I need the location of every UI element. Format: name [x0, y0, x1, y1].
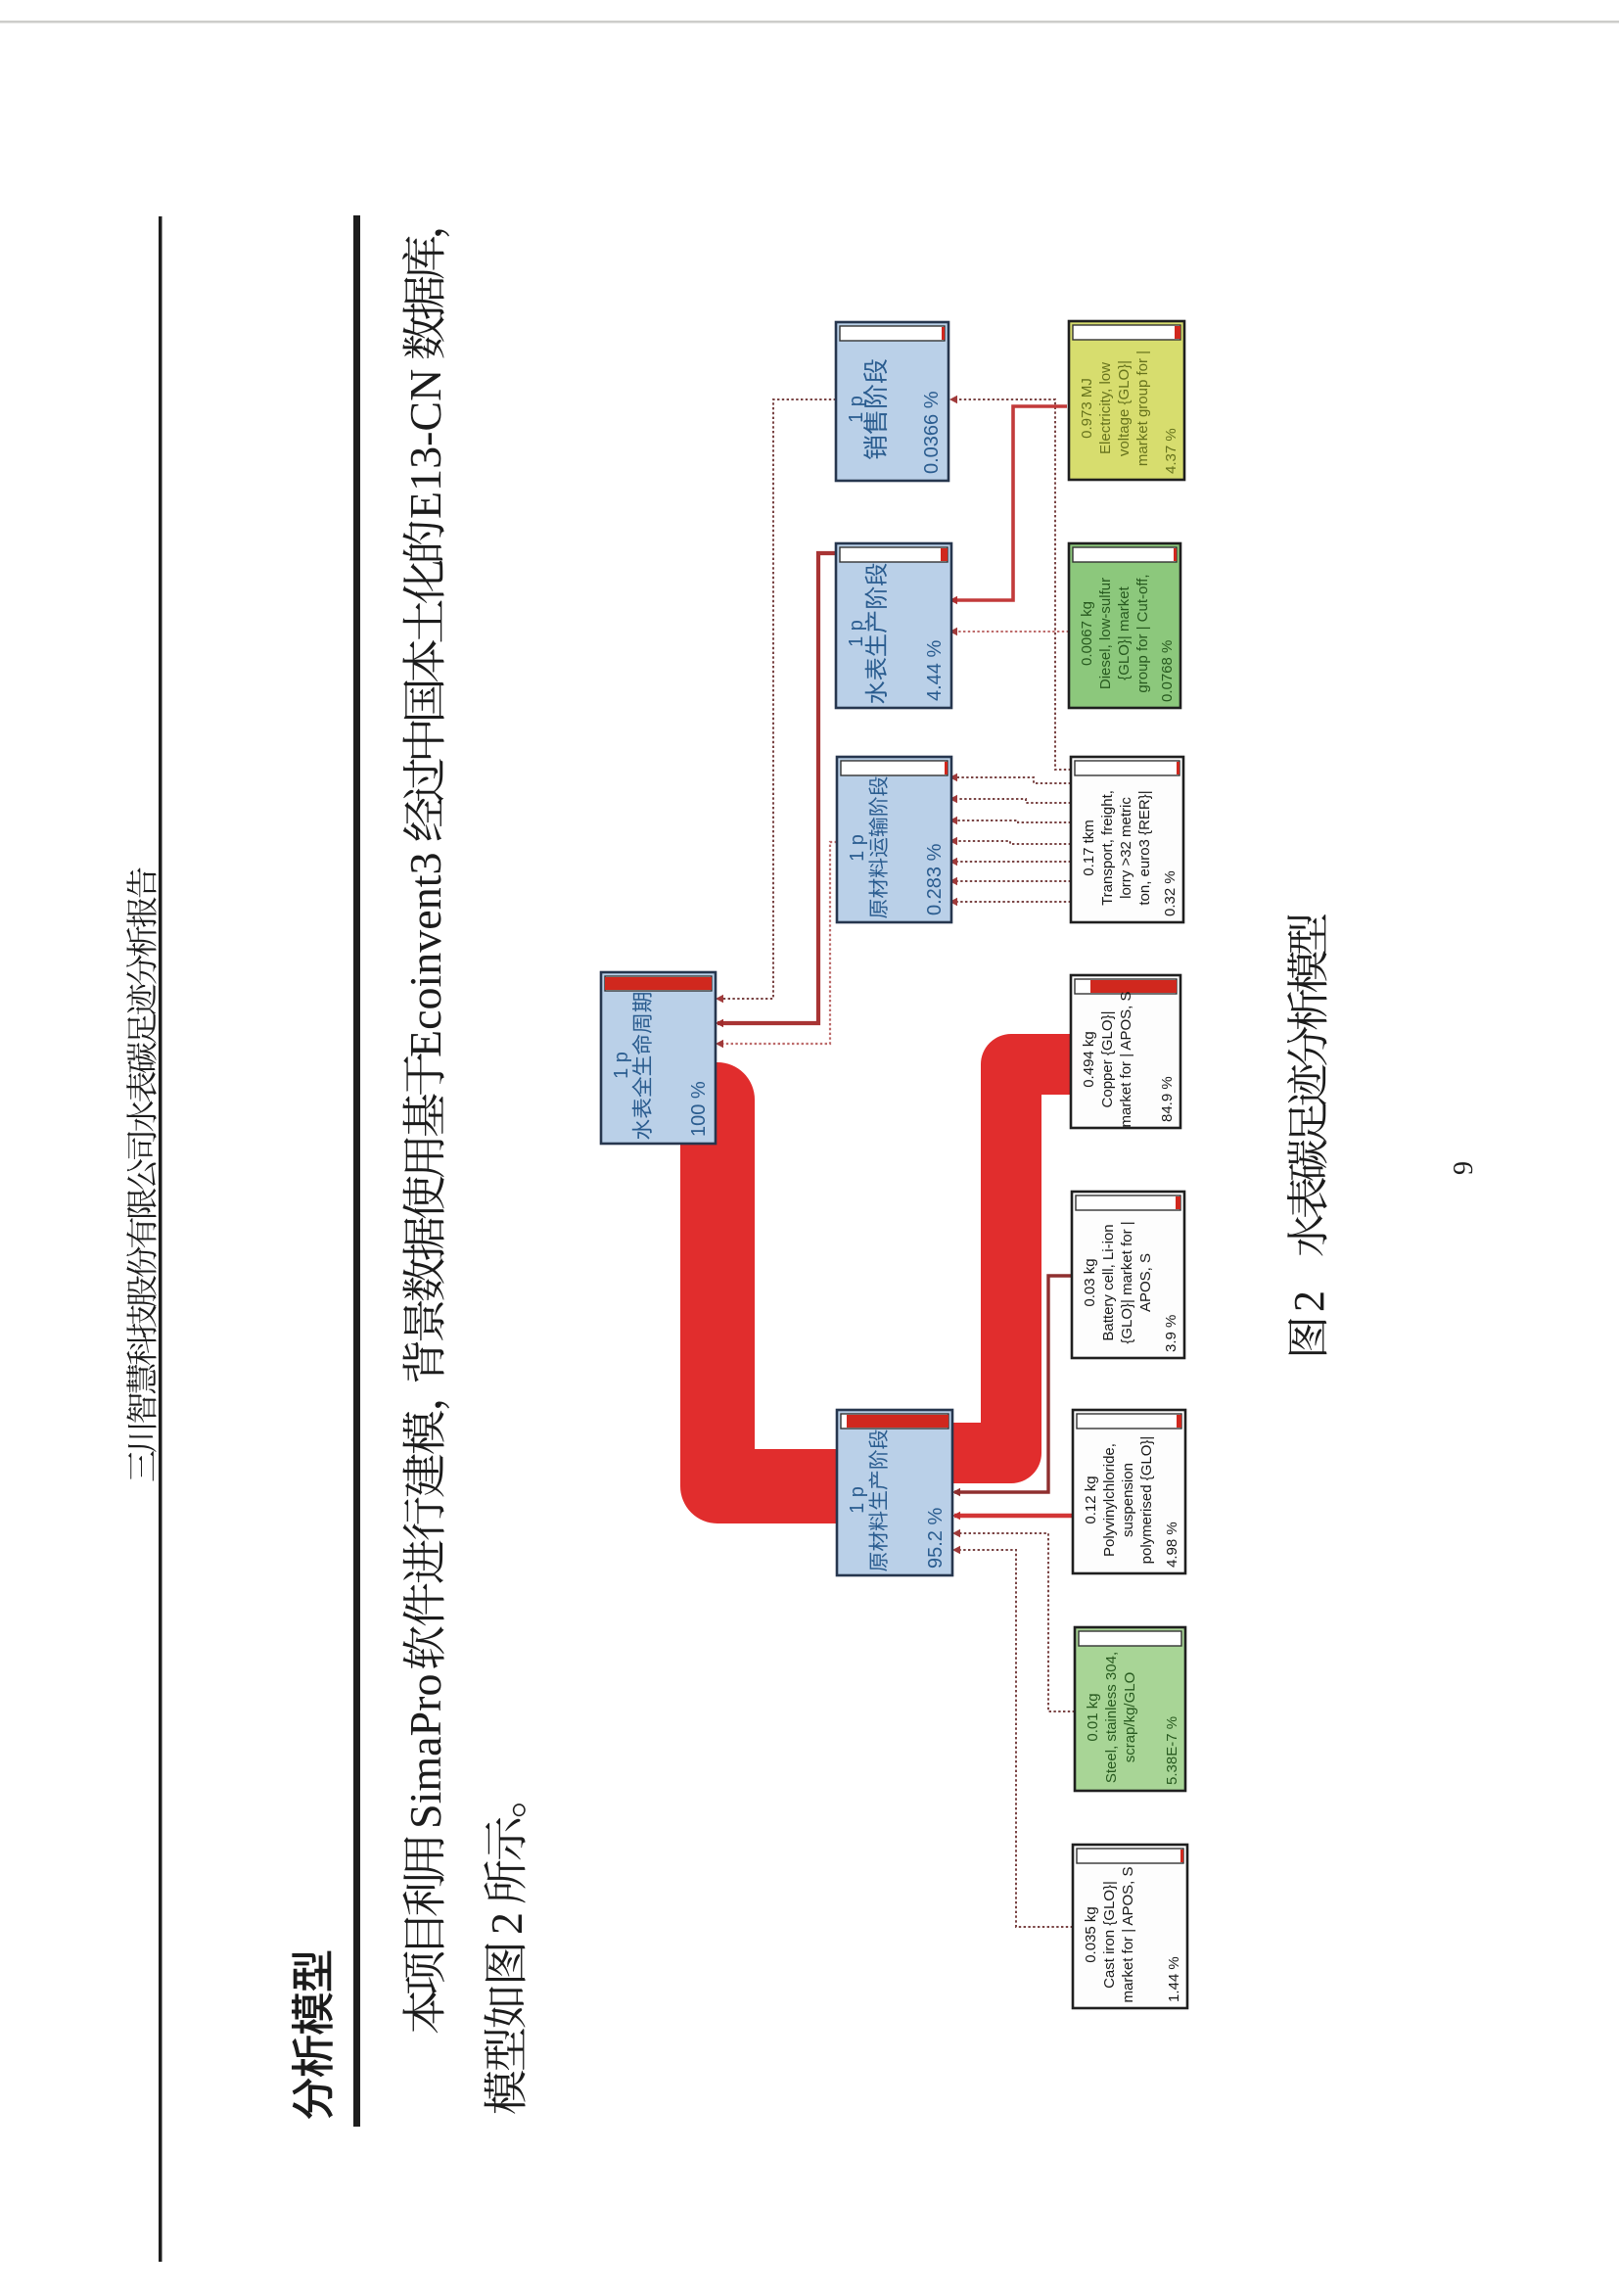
svg-text:group for | Cut-off,: group for | Cut-off,	[1134, 574, 1151, 692]
svg-text:4.37 %: 4.37 %	[1163, 428, 1180, 474]
svg-text:1.44 %: 1.44 %	[1166, 1956, 1182, 2002]
svg-text:9: 9	[1449, 1161, 1479, 1175]
svg-text:Ecoinvent3: Ecoinvent3	[400, 853, 450, 1058]
svg-text:0.0768 %: 0.0768 %	[1159, 640, 1176, 702]
svg-text:polymerised {GLO}|: polymerised {GLO}|	[1138, 1436, 1155, 1565]
svg-text:0.17 tkm: 0.17 tkm	[1081, 820, 1097, 876]
svg-text:lorry >32 metric: lorry >32 metric	[1118, 797, 1134, 899]
svg-text:0.494 kg: 0.494 kg	[1081, 1031, 1097, 1088]
svg-text:Steel, stainless 304,: Steel, stainless 304,	[1103, 1652, 1120, 1783]
svg-text:Electricity, low: Electricity, low	[1097, 362, 1114, 454]
svg-text:APOS, S: APOS, S	[1137, 1253, 1154, 1312]
svg-text:4.98 %: 4.98 %	[1164, 1522, 1180, 1568]
svg-text:suspension: suspension	[1120, 1463, 1136, 1537]
svg-text:0.035 kg: 0.035 kg	[1083, 1906, 1099, 1963]
svg-text:market for | APOS, S: market for | APOS, S	[1120, 1867, 1136, 2003]
svg-text:scrap/kg/GLO: scrap/kg/GLO	[1122, 1672, 1138, 1763]
svg-text:2: 2	[1285, 1290, 1333, 1312]
svg-text:5.38E-7 %: 5.38E-7 %	[1164, 1716, 1180, 1785]
svg-text:3.9 %: 3.9 %	[1163, 1315, 1180, 1352]
svg-text:0.12 kg: 0.12 kg	[1083, 1476, 1099, 1523]
svg-text:SimaPro: SimaPro	[400, 1674, 450, 1829]
svg-text:0.03 kg: 0.03 kg	[1082, 1258, 1098, 1306]
svg-text:Polyvinylchloride,: Polyvinylchloride,	[1101, 1443, 1118, 1557]
svg-text:100 %: 100 %	[688, 1081, 710, 1137]
svg-text:{GLO}| market for |: {GLO}| market for |	[1119, 1221, 1135, 1343]
svg-text:Transport, freight,: Transport, freight,	[1099, 790, 1116, 906]
svg-text:0.01 kg: 0.01 kg	[1085, 1693, 1101, 1741]
svg-text:1 p: 1 p	[846, 396, 867, 423]
svg-text:market group for |: market group for |	[1134, 351, 1151, 466]
svg-text:1 p: 1 p	[846, 620, 867, 647]
svg-text:0.32 %: 0.32 %	[1162, 870, 1179, 916]
svg-text:ton, euro3 {RER}|: ton, euro3 {RER}|	[1136, 790, 1153, 905]
svg-text:4.44 %: 4.44 %	[924, 640, 946, 701]
svg-text:1 p: 1 p	[847, 1486, 868, 1514]
svg-text:Diesel, low-sulfur: Diesel, low-sulfur	[1097, 578, 1114, 689]
svg-text:84.9 %: 84.9 %	[1159, 1076, 1176, 1122]
svg-text:0.973 MJ: 0.973 MJ	[1079, 378, 1095, 439]
svg-text:0.283 %: 0.283 %	[924, 843, 946, 915]
svg-text:0.0366 %: 0.0366 %	[921, 391, 943, 474]
svg-text:0.0067 kg: 0.0067 kg	[1079, 601, 1095, 666]
svg-text:Copper {GLO}|: Copper {GLO}|	[1099, 1011, 1116, 1108]
svg-text:market for | APOS, S: market for | APOS, S	[1118, 992, 1134, 1128]
svg-text:1 p: 1 p	[847, 834, 868, 862]
svg-text:E13-CN: E13-CN	[400, 369, 450, 519]
svg-text:voltage {GLO}|: voltage {GLO}|	[1116, 360, 1133, 456]
svg-text:Cast iron {GLO}|: Cast iron {GLO}|	[1101, 1881, 1118, 1989]
svg-text:1 p: 1 p	[611, 1052, 632, 1079]
svg-text:2: 2	[482, 1912, 532, 1935]
svg-text:95.2 %: 95.2 %	[925, 1508, 947, 1569]
svg-text:{GLO}| market: {GLO}| market	[1116, 586, 1133, 679]
svg-text:Battery cell, Li-ion: Battery cell, Li-ion	[1100, 1224, 1117, 1340]
